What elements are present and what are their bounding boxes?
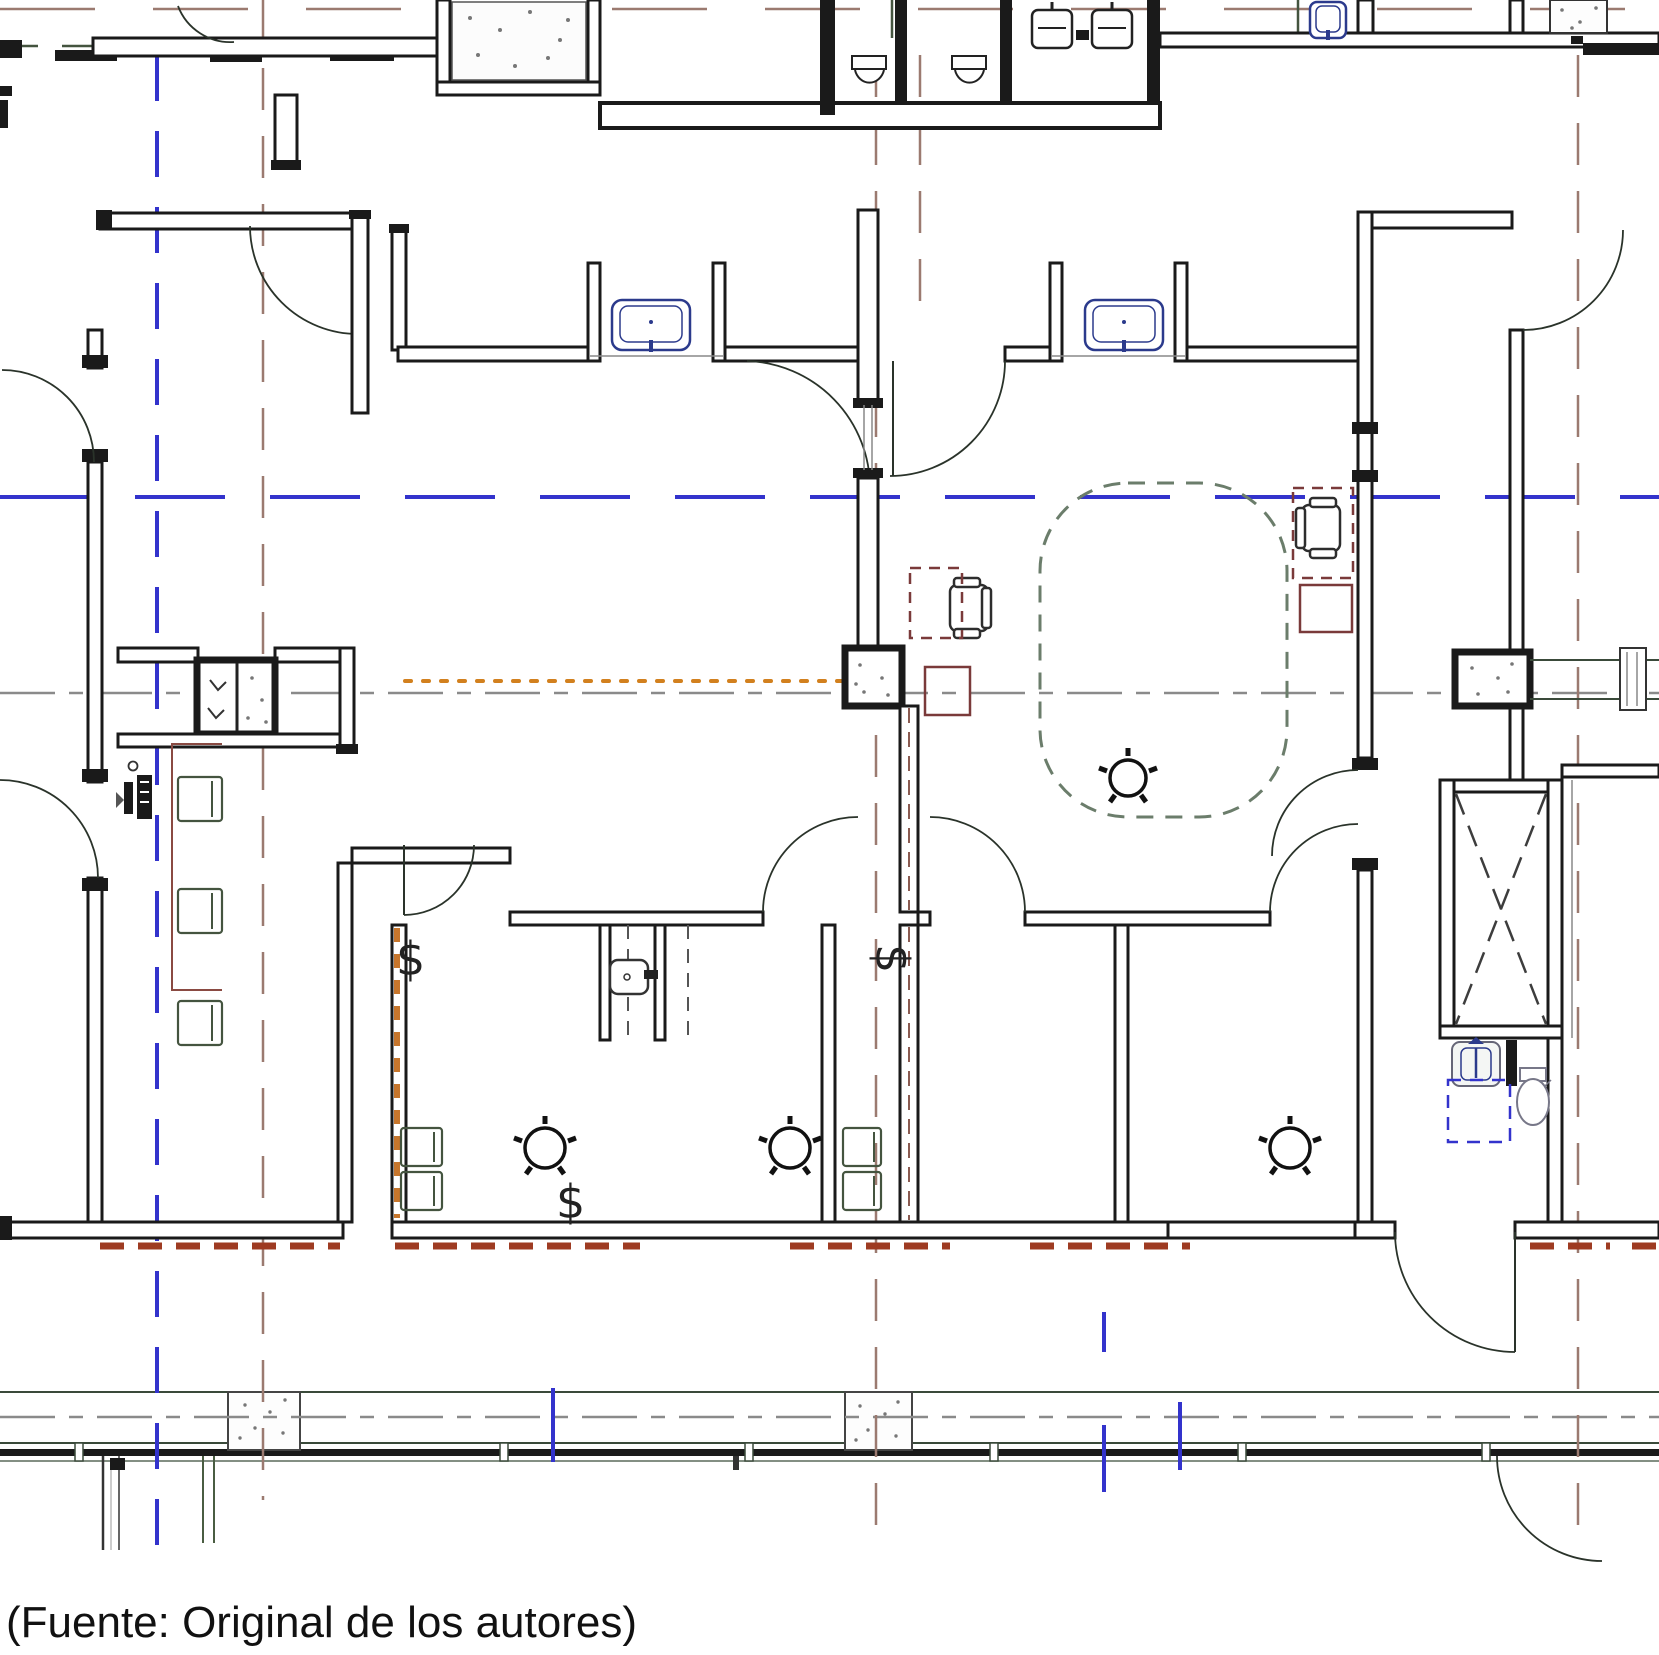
toilet-icon [852,56,886,83]
clearance-dashed [1448,1080,1510,1142]
reference-grid [0,0,1659,1545]
drinking-fountain-icon [610,960,658,994]
floor-plan-drawing: $ $ $ [0,0,1659,1655]
door-arc [763,817,858,912]
door-arc [890,361,1005,476]
strip-column [845,1392,912,1450]
bottom-band [338,817,1358,1246]
top-duct-column [437,0,600,95]
toilet-icon [1517,1068,1551,1125]
door-arc [1272,770,1358,856]
junction-column [197,660,275,734]
door-arc [0,780,98,878]
door-arc [1395,1232,1515,1352]
right-wing [1272,212,1659,1352]
door-arc [1523,230,1623,330]
restroom-divider [1076,30,1089,40]
sink-icon [1085,300,1163,352]
top-restroom [600,0,1160,128]
office-chair [950,578,991,638]
sink-icon [1452,1037,1500,1086]
door-arc [1270,824,1358,912]
junction-column [1455,652,1530,706]
round-table [759,1116,821,1174]
side-table [925,667,970,715]
round-table [1259,1116,1321,1174]
top-right-column [1550,0,1607,33]
junction-column [845,648,902,706]
meeting-table-ghost [1040,483,1287,817]
elevator-shaft [1440,780,1562,1038]
section-marker-s: $ [556,1175,585,1229]
floor-plan-canvas: $ $ $ (Fuente: Original de los autores) [0,0,1659,1655]
strip-lower-stubs [103,1456,1602,1561]
urinal-icon [1032,2,1072,48]
top-block [0,0,1659,170]
chair [178,1001,222,1045]
round-stool [1099,748,1157,802]
figure-caption: (Fuente: Original de los autores) [6,1598,637,1648]
bathroom [1448,1037,1562,1222]
door-arc [250,226,358,334]
wall-panel-icon [116,762,152,820]
counter-outline [172,744,222,990]
chair [178,777,222,821]
urinal-icon [1092,2,1132,48]
round-table [514,1116,576,1174]
office-chair [1296,498,1340,558]
chair [178,889,222,933]
center-rooms [398,210,1358,1222]
facade-strip [0,1392,1659,1561]
door-arc [930,817,1025,912]
sink-icon [1310,2,1346,40]
side-table [1300,585,1352,632]
door-arc [2,370,94,462]
door-arc [747,361,870,488]
sink-icon [612,300,690,352]
section-marker-s: $ [865,944,919,973]
toilet-icon [952,56,986,83]
section-marker-s: $ [396,932,425,986]
